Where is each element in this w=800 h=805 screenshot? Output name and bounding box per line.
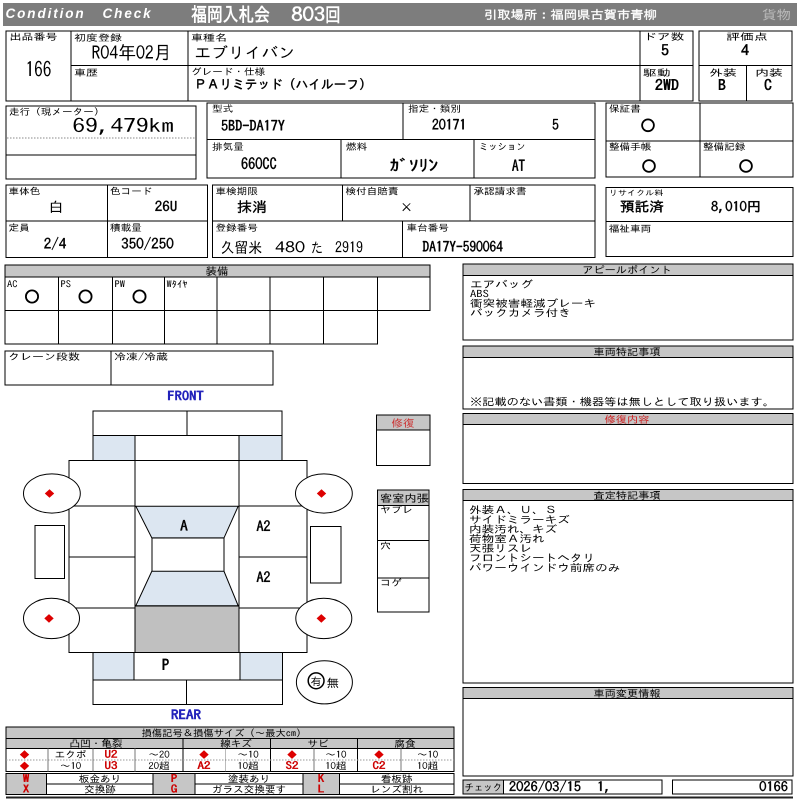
svg-text:Condition Check: Condition Check (6, 6, 153, 21)
